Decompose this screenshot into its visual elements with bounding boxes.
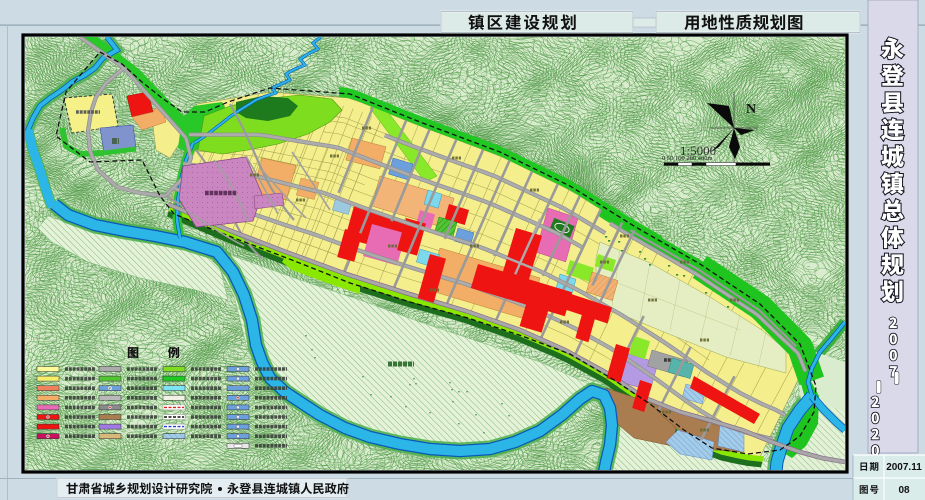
svg-text:0 50 100 200: 0 50 100 200 400m: [662, 155, 713, 162]
svg-text:2007.11: 2007.11: [886, 462, 922, 473]
svg-text:N: N: [746, 102, 756, 117]
svg-text:P: P: [109, 386, 112, 391]
svg-text:08: 08: [898, 485, 910, 496]
